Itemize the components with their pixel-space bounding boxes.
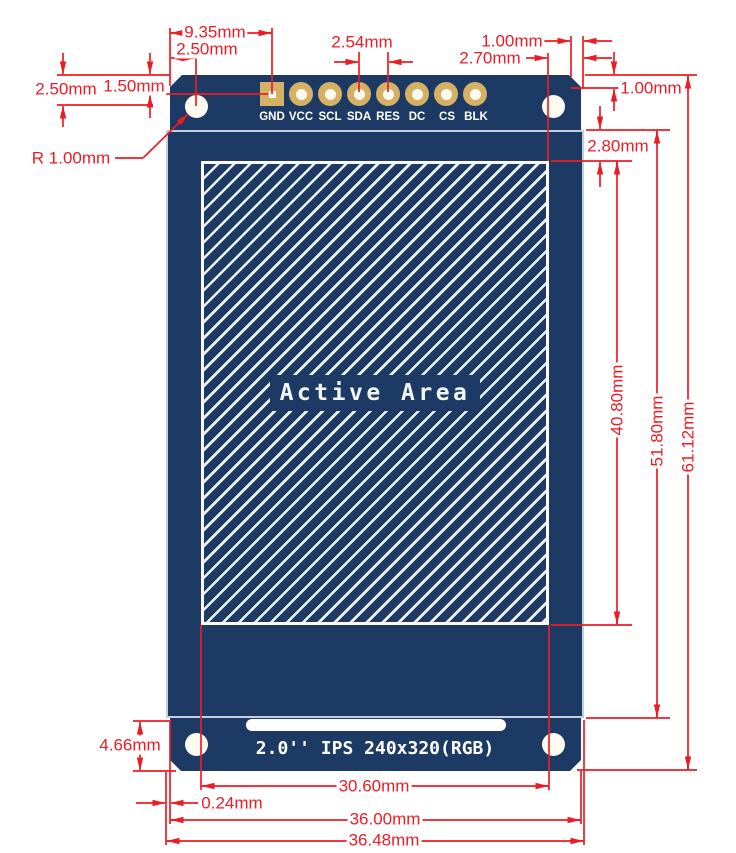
- active-area-label: Active Area: [270, 375, 481, 411]
- pin-label-sda: SDA: [347, 111, 371, 123]
- dim-active-width: 30.60mm: [337, 777, 412, 796]
- dim-hole-offset-y: 2.50mm: [33, 80, 98, 99]
- pad-hole: [412, 89, 423, 100]
- mounting-hole-bottom-right: [542, 733, 565, 756]
- dim-active-edge-gap: 2.70mm: [457, 49, 522, 68]
- dim-board-width: 36.00mm: [348, 810, 423, 829]
- pad-gnd: [260, 82, 284, 106]
- dim-pin-pitch: 2.54mm: [329, 33, 394, 52]
- active-area: Active Area: [201, 161, 549, 625]
- dim-hole-offset-x: 2.50mm: [174, 40, 239, 59]
- pad-hole: [383, 89, 394, 100]
- dim-glass-overhang: 0.24mm: [199, 794, 264, 813]
- pin-label-res: RES: [376, 111, 400, 123]
- fpc-connector-bar: [246, 719, 506, 731]
- pad-hole: [296, 89, 307, 100]
- pad-scl: [318, 82, 342, 106]
- pad-hole: [269, 91, 276, 98]
- dim-active-height: 40.80mm: [608, 363, 627, 438]
- mounting-hole-top-left: [185, 95, 208, 118]
- dimension-drawing: Active Area GND VCC SCL SDA RES DC CS BL…: [0, 0, 736, 853]
- pad-res: [376, 82, 400, 106]
- pad-vcc: [289, 82, 313, 106]
- mounting-hole-top-right: [542, 95, 565, 118]
- dim-glass-height: 51.80mm: [648, 394, 667, 469]
- silk-text: 2.0'' IPS 240x320(RGB): [256, 738, 494, 759]
- pin-label-vcc: VCC: [289, 111, 313, 123]
- pad-blk: [463, 82, 487, 106]
- pad-sda: [347, 82, 371, 106]
- pad-cs: [434, 82, 458, 106]
- mounting-hole-bottom-left: [185, 733, 208, 756]
- dim-chamfer-height: 1.00mm: [618, 79, 683, 98]
- dim-board-height: 61.12mm: [679, 400, 698, 475]
- pad-hole: [441, 89, 452, 100]
- pin-label-blk: BLK: [464, 111, 488, 123]
- dim-active-top-gap: 2.80mm: [585, 137, 650, 156]
- dim-pad-offset-y: 1.50mm: [101, 77, 166, 96]
- dim-hole-radius: R 1.00mm: [30, 149, 112, 168]
- pad-hole: [470, 89, 481, 100]
- pin-label-cs: CS: [439, 111, 455, 123]
- pad-hole: [354, 89, 365, 100]
- pin-label-scl: SCL: [319, 111, 342, 123]
- pin-label-gnd: GND: [259, 111, 285, 123]
- dim-glass-width: 36.48mm: [347, 831, 422, 850]
- pad-hole: [325, 89, 336, 100]
- dim-tab-height: 4.66mm: [97, 736, 162, 755]
- pad-dc: [405, 82, 429, 106]
- pin-label-dc: DC: [409, 111, 426, 123]
